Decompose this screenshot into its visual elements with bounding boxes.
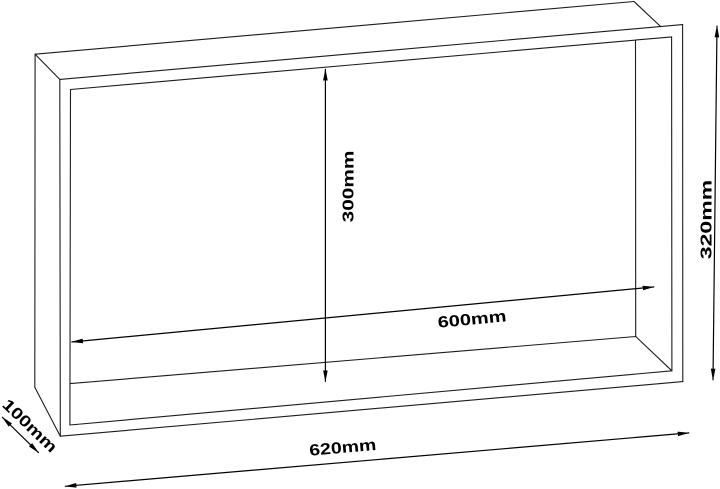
svg-text:320mm: 320mm: [698, 180, 716, 259]
svg-text:300mm: 300mm: [339, 151, 357, 223]
